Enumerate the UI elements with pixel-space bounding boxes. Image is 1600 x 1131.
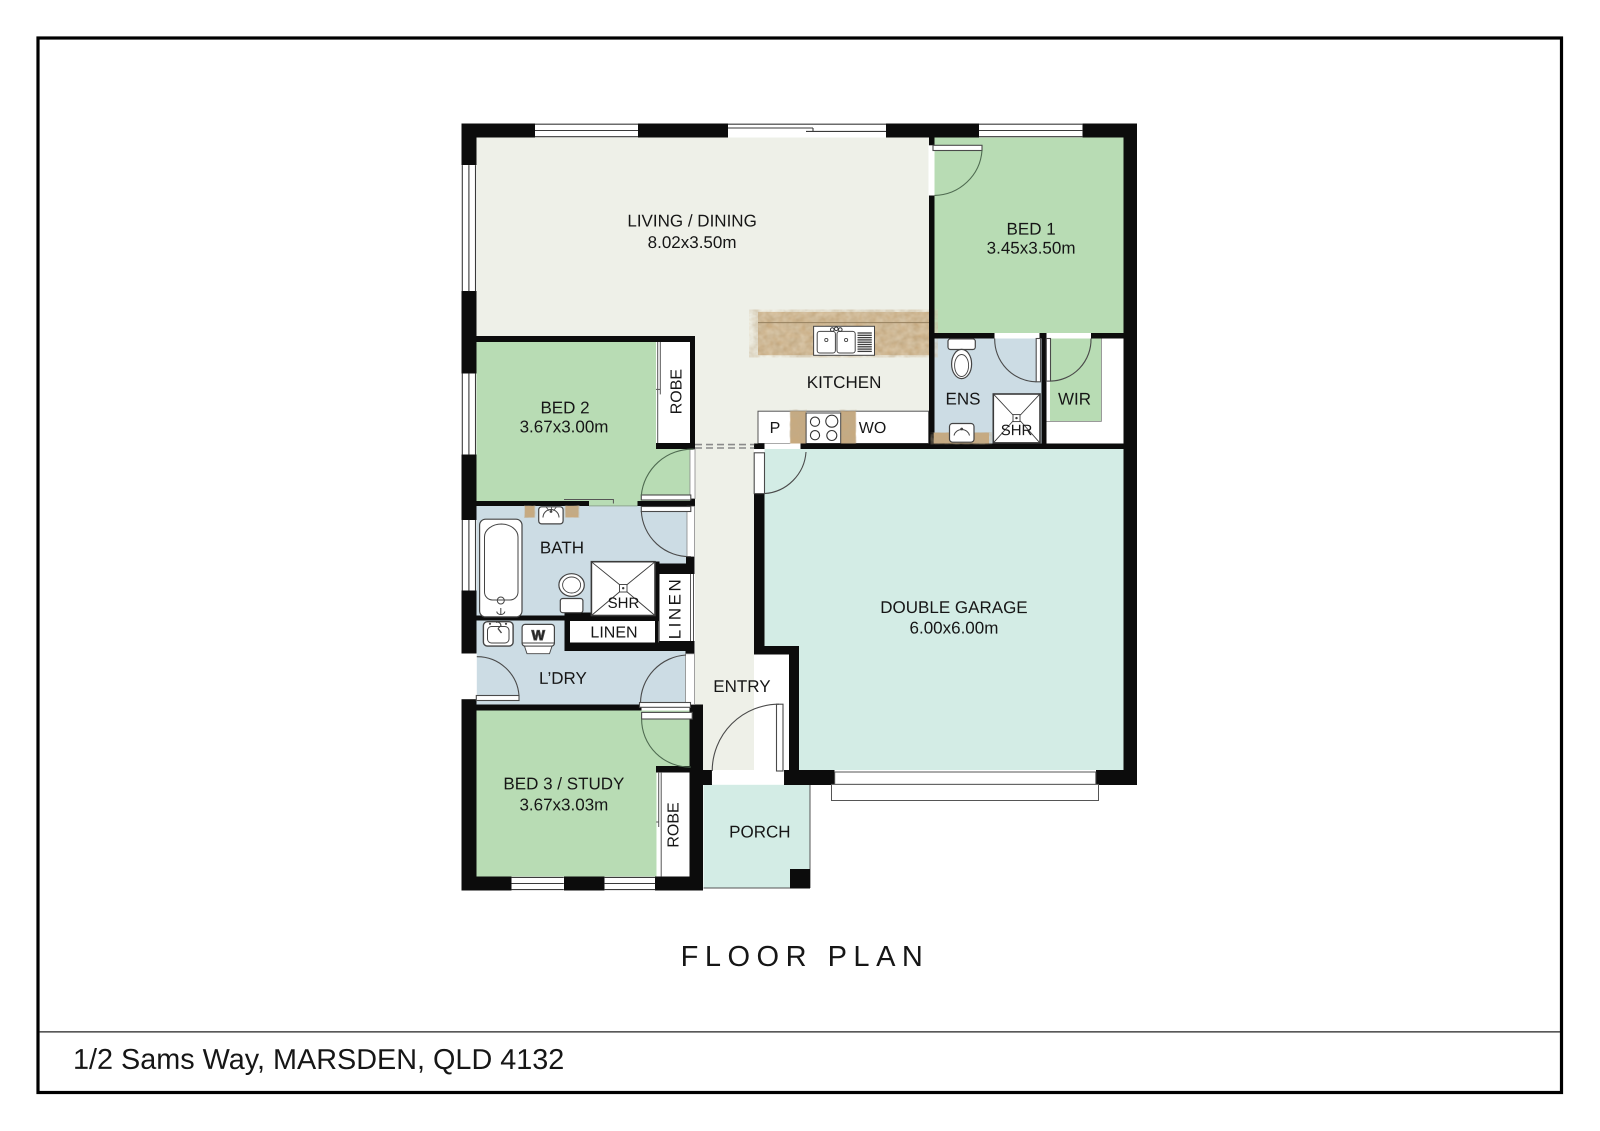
- svg-text:KITCHEN: KITCHEN: [807, 373, 882, 392]
- svg-text:1/2 Sams Way, MARSDEN, QLD 413: 1/2 Sams Way, MARSDEN, QLD 4132: [73, 1044, 564, 1076]
- svg-text:WO: WO: [859, 420, 887, 437]
- svg-text:SHR: SHR: [1001, 422, 1033, 439]
- svg-text:ROBE: ROBE: [666, 802, 683, 847]
- svg-text:ENTRY: ENTRY: [713, 677, 770, 696]
- svg-text:LINEN: LINEN: [590, 624, 637, 641]
- svg-text:ENS: ENS: [946, 390, 981, 409]
- svg-text:3.67x3.03m: 3.67x3.03m: [519, 795, 608, 814]
- svg-text:ROBE: ROBE: [669, 369, 686, 414]
- svg-text:3.67x3.00m: 3.67x3.00m: [520, 417, 609, 436]
- svg-text:PORCH: PORCH: [729, 822, 790, 841]
- svg-text:LIVING / DINING: LIVING / DINING: [627, 211, 756, 230]
- svg-text:SHR: SHR: [608, 595, 640, 612]
- svg-text:BED 2: BED 2: [540, 398, 589, 417]
- svg-text:BATH: BATH: [540, 538, 584, 557]
- svg-text:L’DRY: L’DRY: [539, 669, 587, 688]
- svg-text:P: P: [770, 420, 781, 437]
- svg-text:BED 3 / STUDY: BED 3 / STUDY: [503, 774, 624, 793]
- svg-text:FLOOR PLAN: FLOOR PLAN: [681, 941, 930, 973]
- svg-text:DOUBLE GARAGE: DOUBLE GARAGE: [880, 598, 1027, 617]
- svg-text:LINEN: LINEN: [666, 577, 685, 640]
- svg-text:3.45x3.50m: 3.45x3.50m: [987, 239, 1076, 258]
- svg-text:BED 1: BED 1: [1007, 220, 1056, 239]
- svg-text:6.00x6.00m: 6.00x6.00m: [910, 619, 999, 638]
- svg-text:8.02x3.50m: 8.02x3.50m: [648, 233, 737, 252]
- svg-text:W: W: [532, 627, 546, 643]
- svg-text:WIR: WIR: [1058, 390, 1091, 409]
